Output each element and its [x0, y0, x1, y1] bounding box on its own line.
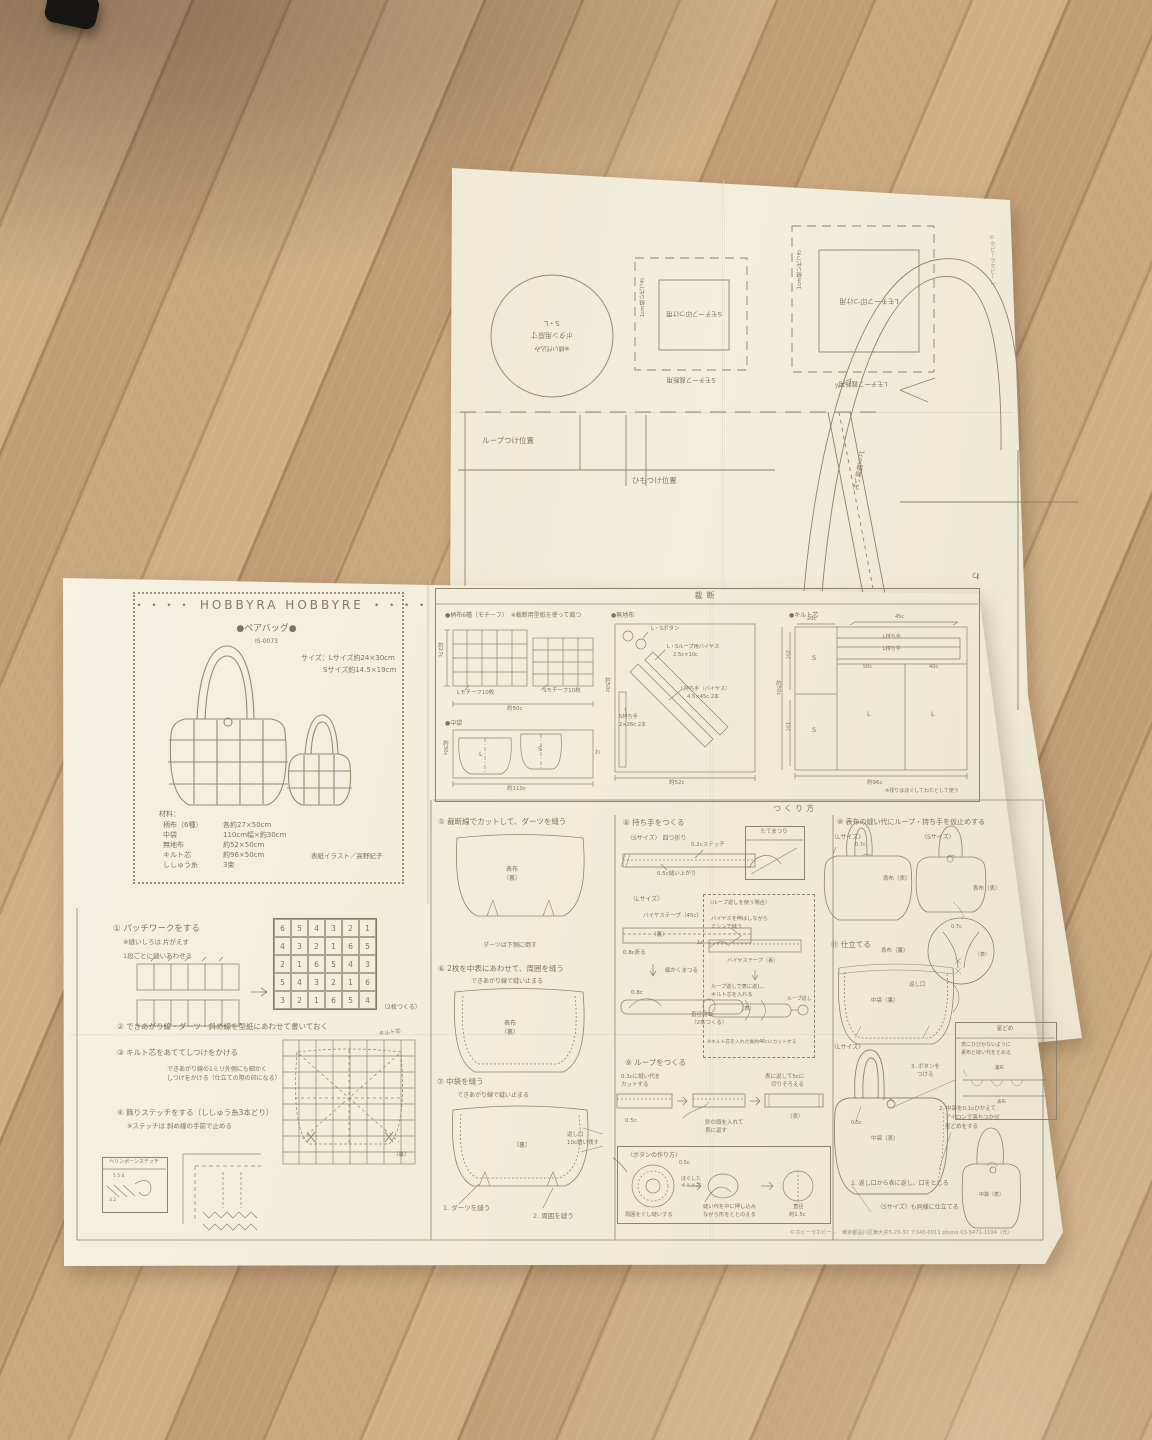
patch-number-cell: 2 — [342, 919, 359, 937]
step9-title: ⑨ ループをつくる — [625, 1058, 686, 1067]
cover-credit: 表紙イラスト／高野紀子 — [311, 852, 382, 860]
l-motif-seam-note: 1cm縫い代つき — [797, 250, 804, 289]
step11-iron-label1: 2. 中袋を0.1cひかえて — [939, 1106, 996, 1113]
patch-number-cell: 3 — [359, 955, 376, 973]
step7-opening-label2: 10c縫い残す — [567, 1140, 599, 1147]
step10-bag-s-label: 表布（表） — [973, 886, 1001, 893]
batting-l1: L — [867, 710, 871, 718]
batting-20c: 20c — [807, 616, 816, 622]
patch-number-cell: 3 — [274, 991, 291, 1009]
loop-case-1c: 1c — [697, 940, 703, 947]
publisher-footer: ©ホビーラホビーレ 東京都品川区東大井5-23-37 〒140-0011 pho… — [790, 1230, 1012, 1237]
patch-number-cell: 4 — [342, 955, 359, 973]
button-core-label1: ほぐした — [681, 1176, 701, 1182]
herringbone-title: ヘリンボーンステッチ — [102, 1159, 166, 1165]
patch-number-cell: 1 — [342, 973, 359, 991]
button-box-title: 〈ボタンの作り方〉 — [627, 1152, 681, 1160]
instruction-sheet: ・・・・ HOBBYRA HOBBYRE ・・・・ ●ペアバッグ● IS-007… — [55, 572, 1067, 1272]
final-s-bag — [962, 1128, 1020, 1228]
step1-title: ① パッチワークをする — [113, 924, 200, 935]
step11-iron-label2: アイロンで落ちつかせ — [945, 1115, 1000, 1122]
patch-number-cell: 6 — [274, 919, 291, 937]
loop-case-line1: バイヤスを伸ばしながら — [711, 916, 768, 923]
batting-45c: 45c — [895, 614, 904, 620]
loop-case-line4: キルト芯を入れる — [711, 992, 753, 999]
patch-number-cell: 1 — [325, 937, 342, 955]
lining-fold-label: わ — [595, 750, 601, 757]
cover-item-number: IS-0073 — [133, 638, 400, 646]
patch-number-cell: 3 — [291, 937, 308, 955]
motif-l-label: Lモチーフ10枚 — [457, 690, 494, 697]
photo-of-sewing-pattern-on-wood-floor: { "pattern_sheet": { "circle": { "l1": "… — [0, 0, 1152, 1440]
step8-title: ⑧ 持ち手をつくる — [623, 818, 684, 827]
loop-turner-label: ループ返し — [787, 996, 812, 1002]
step8-fold-label: 0.8c折る — [623, 950, 646, 957]
step11-button-label2: つける — [917, 1072, 934, 1079]
step11-title: ⑪ 仕立てる — [831, 940, 871, 949]
herringbone-stitch-box — [102, 1157, 168, 1213]
step10-07c-label: 0.7c — [855, 842, 866, 848]
patch-number-cell: 5 — [359, 937, 376, 955]
step5-bag-label2: （裏） — [487, 875, 537, 883]
herringbone-numbers2: 3 2 — [109, 1198, 116, 1204]
hoshidome-title: 星どめ — [955, 1026, 1055, 1033]
step11-button-label1: 3. ボタンを — [911, 1064, 940, 1071]
loop-case-bias-label: バイヤステープ（裏） — [727, 958, 778, 965]
step1-make-note: （2枚つくる） — [381, 1004, 421, 1012]
patch-number-cell: 2 — [291, 991, 308, 1009]
tatematsuri-title: たてまつり — [745, 829, 803, 836]
s-motif-seam-note: 1cm縫い代つき — [640, 278, 647, 317]
button-gather-label: 周囲をぐし縫いする — [625, 1212, 673, 1219]
batting-25c: 25c — [784, 650, 790, 659]
button-dia-label1: 直径 — [793, 1204, 804, 1211]
patch-number-cell: 4 — [359, 991, 376, 1009]
batting-s2: S — [812, 726, 816, 734]
batting-40c: 40c — [929, 664, 938, 670]
material-name: ししゅう糸 — [163, 861, 198, 870]
patch-number-cell: 6 — [308, 955, 325, 973]
step1-sub: 1段ごとに縫いあわせる — [123, 952, 192, 960]
patch-number-cell: 1 — [308, 991, 325, 1009]
loop-case-title: 〈ループ返しを使う場合〉 — [707, 900, 770, 907]
patch-number-cell: 6 — [342, 937, 359, 955]
step4-corner-diagram — [183, 1154, 261, 1230]
loop-position-label: ループつけ位置 — [482, 436, 534, 445]
herringbone-numbers1: 1 5 4 — [113, 1174, 124, 1180]
step4-title: ④ 飾りステッチをする（ししゅう糸3本どり） — [117, 1108, 273, 1117]
patch-number-cell: 5 — [291, 919, 308, 937]
sheet-edge-copyright: ©ホビーラホビーレ — [988, 235, 995, 285]
step8-fine-label: 細かくまつる — [665, 968, 698, 975]
material-name: 中袋 — [163, 831, 177, 840]
brand-title: ・・・・ HOBBYRA HOBBYRE ・・・・ — [133, 598, 400, 613]
step9-omote-label: （表） — [787, 1114, 804, 1121]
patchwork-number-grid: 654321432165216543543216321654 — [273, 918, 377, 1010]
step11-outer-label: 表布（裏） — [881, 948, 909, 955]
final-l-bag — [834, 1050, 955, 1212]
plain-bias-label1: L・Sループ用バイヤス — [667, 644, 719, 651]
step10-detail-omote: （表） — [975, 952, 990, 958]
step11-turn-label: 1. 返し口から表に返し、口をとじる — [851, 1180, 949, 1188]
l-motif-inner-label: Lモチーフ印つけ用 — [819, 296, 919, 305]
step11-l-size: 〈Lサイズ〉 — [831, 1044, 864, 1052]
step9-cut-label2: カットする — [621, 1082, 649, 1089]
hoshidome-omote-label: 表布 — [997, 1100, 1006, 1106]
step5-bag-label1: 表布 — [487, 866, 537, 874]
lining-width-label: 約110c — [507, 786, 526, 793]
patch-number-cell: 2 — [308, 937, 325, 955]
step3-note1: できあがり線の1ミリ外側にも細かく — [167, 1066, 267, 1074]
step5-title: ⑤ 裁断線でカットして、ダーツを縫う — [438, 817, 566, 826]
cover-product-title: ●ペアバッグ● — [133, 624, 400, 635]
patch-number-cell: 5 — [274, 973, 291, 991]
patch-number-cell: 2 — [325, 973, 342, 991]
hoshidome-note2: 裏布と縫い代をとめる — [961, 1050, 1011, 1056]
step11-iron-label3: 星どめをする — [945, 1124, 978, 1131]
loop-case-line2: ミシンで縫う — [711, 924, 742, 931]
patch-number-cell: 1 — [359, 919, 376, 937]
step2-title: ② できあがり線・ダーツ・斜め線を型紙にあわせて書いておく — [117, 1022, 328, 1031]
step8-stitch-label: 0.2cステッチ — [691, 842, 725, 849]
cutting-header: 裁断 — [435, 591, 978, 601]
plain-s-handle-label1: S持ち手 — [619, 714, 638, 721]
step6-bag-label1: 表布 — [485, 1020, 535, 1028]
step4-note: ※ステッチは 斜め線の手前で止める — [127, 1122, 232, 1130]
step11-s-note: 〈Sサイズ〉も同様に仕立てる — [877, 1204, 959, 1212]
step11-s-bag-label: 中袋（表） — [979, 1192, 1004, 1198]
step7-bag — [452, 1106, 603, 1208]
step8-s-size: 〈Sサイズ〉 四つ折り — [627, 835, 687, 843]
patch-number-cell: 6 — [325, 991, 342, 1009]
motif-width-label: 約50c — [507, 706, 523, 713]
step9-trim-label2: 切りそろえる — [771, 1082, 804, 1089]
step10-bags — [824, 822, 994, 984]
step3-ura-label: （裏） — [393, 1152, 410, 1159]
plain-width-label: 約52c — [669, 780, 685, 787]
batting-handle-label2: L持ち手 — [883, 646, 901, 652]
step9-cut-label1: 0.3cに縫い代を — [621, 1074, 660, 1081]
batting-note: ※残りはほぐしてわたとして使う — [885, 788, 959, 794]
material-name: キルト芯 — [163, 851, 191, 860]
plain-l-handle-label1: L持ち手（バイヤス） — [681, 686, 730, 693]
material-qty: 約96×50cm — [223, 851, 264, 860]
step8-l-size: 〈Lサイズ〉 — [630, 896, 663, 904]
patch-number-cell: 4 — [308, 919, 325, 937]
circle-label-line3: ※縫い代込み — [500, 344, 604, 352]
button-push-label2: ながら形をととのえる — [703, 1212, 756, 1219]
button-dia-label2: 約1.5c — [789, 1212, 806, 1219]
step8-s-handle — [621, 850, 755, 870]
batting-l2: L — [931, 710, 935, 718]
cover-size-line2: Sサイズ約14.5×19cm — [323, 666, 396, 675]
step11-assembly-bag — [838, 964, 959, 1044]
motif-fabric-title: ●柄布6種（モチーフ） ※裁断用型紙を使って裁つ — [445, 612, 581, 620]
button-core-label2: キルト芯 — [681, 1183, 701, 1189]
patch-number-cell: 1 — [291, 955, 308, 973]
material-qty: 約52×50cm — [223, 841, 264, 850]
step8-bias-label: バイヤステープ（45c） — [643, 913, 702, 920]
loop-case-cut-note: ※キルト芯を入れた後約46cにカットする — [707, 1040, 797, 1046]
lining-l-label: L — [479, 750, 483, 758]
step7-opening-label1: 返し口 — [567, 1132, 584, 1139]
step8-width-label: 0.8c — [631, 990, 643, 997]
batting-s1: S — [812, 654, 816, 662]
step10-detail-07c: 0.7c — [951, 924, 962, 930]
step6-note: できあがり線で縫い止まる — [471, 978, 543, 986]
plain-button-label: L・Sボタン — [651, 626, 680, 633]
step9-width-label: 0.5c — [625, 1118, 637, 1125]
step10-title: ⑩ 表布の縫い代にループ・持ち手を仮止めする — [837, 818, 985, 827]
circle-label-line1: S・L — [500, 318, 604, 327]
s-motif-inner-label: Sモチーフ印つけ用 — [659, 310, 729, 318]
batting-height-label: 約50c — [774, 680, 781, 696]
step6-bag-label2: （裏） — [485, 1029, 535, 1037]
plain-l-handle-label2: 4.5×45c 2本 — [687, 694, 719, 701]
step11-bag-label: 中袋（表） — [871, 1136, 899, 1143]
step1-strips — [137, 957, 267, 1026]
plain-fabric-title: ●無地布 — [611, 612, 634, 620]
step9-turn-label2: 表に返す — [705, 1128, 727, 1135]
step3-note2: しつけをかける（仕立ての際の印になる） — [167, 1075, 281, 1083]
dark-object-on-floor — [43, 0, 101, 31]
lining-title: ●中袋 — [445, 720, 462, 728]
batting-handle-label1: L持ち手 — [883, 634, 901, 640]
step1-note: ※縫いしろは 片がえす — [123, 938, 189, 946]
howto-header: つくり方 — [555, 804, 1035, 814]
s-motif-outer-label: Sモチーフ裁断用 — [635, 376, 747, 384]
circle-label-line2: ボタン用原寸 — [500, 330, 604, 339]
patch-number-cell: 4 — [274, 937, 291, 955]
step5-note: ダーツは下側に倒す — [483, 942, 537, 950]
button-push-label1: 縫い代を中に押し込み — [703, 1204, 756, 1211]
loop-case-line3: ループ返しで表に返し、 — [711, 984, 768, 991]
string-position-label: ひもつけ位置 — [632, 476, 677, 485]
patch-number-cell: 3 — [325, 919, 342, 937]
patch-number-cell: 5 — [342, 991, 359, 1009]
batting-15c: 15c — [784, 722, 790, 731]
material-qty: 3束 — [223, 861, 234, 870]
patch-number-cell: 4 — [291, 973, 308, 991]
batting-width-label: 約96c — [867, 780, 883, 787]
step10-s-size: 〈Sサイズ〉 — [921, 834, 955, 842]
material-qty: 110cm幅×約30cm — [223, 831, 286, 840]
materials-title: 材料： — [159, 810, 180, 819]
button-width-label: 0.5c — [679, 1160, 690, 1166]
patch-number-cell: 6 — [359, 973, 376, 991]
patch-number-cell: 2 — [274, 955, 291, 973]
step8-finish-label: 0.5c縫い上がり — [657, 871, 696, 878]
step6-title: ⑥ 2枚を中表にあわせて、周囲を縫う — [438, 964, 564, 973]
material-name: 柄布（6種） — [163, 821, 202, 830]
step9-turn-label1: 針の頭を入れて — [705, 1120, 743, 1127]
step11-opening-label: 返し口 — [909, 982, 926, 989]
loop-case-omote: （表） — [739, 1006, 755, 1013]
patch-number-cell: 3 — [308, 973, 325, 991]
step10-bag-l-label: 表布（表） — [883, 876, 911, 883]
batting-50c: 50c — [863, 664, 872, 670]
step8-ura-label: （裏） — [651, 932, 668, 939]
step7-ura-label: （裏） — [513, 1142, 531, 1150]
step7-sub1: 1. ダーツを縫う — [443, 1204, 490, 1212]
step7-sub2: 2. 周囲を縫う — [533, 1212, 574, 1220]
motif-s-label: Sモチーフ10枚 — [543, 688, 581, 695]
step11-05c-label: 0.5c — [851, 1120, 862, 1126]
lining-height-label: 約30c — [441, 740, 448, 756]
l-motif-outer-label: Lモチーフ裁断用 — [792, 380, 934, 388]
hoshidome-note1: 表にひびかないように — [961, 1042, 1011, 1048]
step11-lining-label: 中袋（裏） — [871, 998, 899, 1005]
lining-s-label: S — [538, 745, 542, 753]
material-name: 無地布 — [163, 841, 184, 850]
step3-quilt-diagram — [283, 1040, 415, 1164]
plain-s-handle-label2: 2×26c 2本 — [619, 722, 646, 729]
patch-number-cell: 5 — [325, 955, 342, 973]
step7-title: ⑦ 中袋を縫う — [437, 1077, 484, 1086]
step10-l-size: 〈Lサイズ〉 — [831, 834, 864, 842]
motif-height-label: 約27c — [436, 642, 443, 658]
step9-trim-label1: 表に返して5cに — [765, 1074, 804, 1081]
material-qty: 各約27×50cm — [223, 821, 271, 830]
cover-size-line1: サイズ：Lサイズ約24×30cm — [301, 654, 395, 663]
step7-note: できあがり線で縫い止まる — [457, 1092, 529, 1100]
plain-height-label: 約50c — [603, 677, 610, 693]
hoshidome-ura-label: 裏布 — [995, 1066, 1004, 1072]
plain-bias-label2: 2.5c×10c — [673, 652, 698, 659]
step3-title: ③ キルト芯をあててしつけをかける — [117, 1048, 238, 1057]
